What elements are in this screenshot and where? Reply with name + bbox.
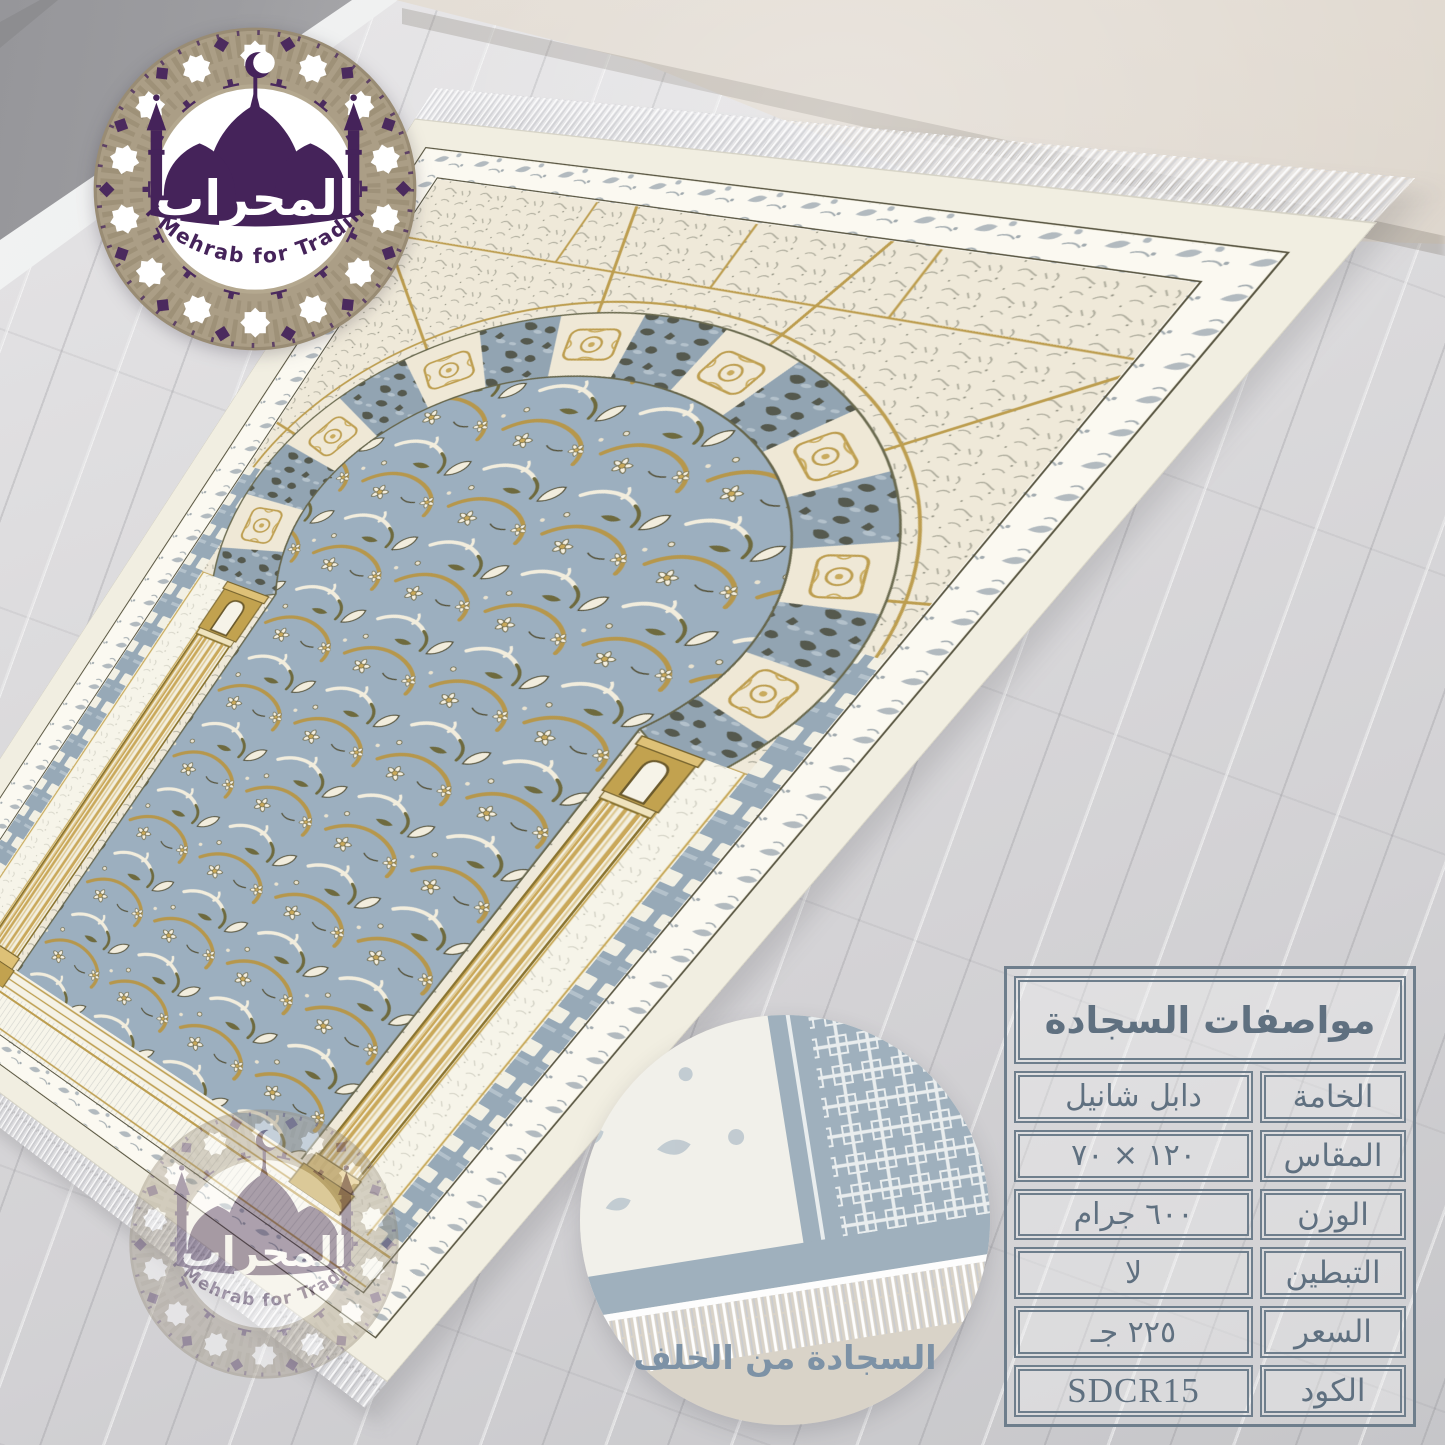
spec-table: مواصفات السجادة الخامة دابل شانيل المقاس… — [1004, 966, 1416, 1427]
spec-label-size: المقاس — [1260, 1130, 1406, 1182]
spec-value-lining: لا — [1014, 1247, 1253, 1299]
inset-caption: السجادة من الخلف — [580, 1338, 990, 1377]
spec-label-material: الخامة — [1260, 1071, 1406, 1123]
scene: السجادة من الخلف مواصفات السجادة الخامة … — [0, 0, 1445, 1445]
spec-label-price: السعر — [1260, 1306, 1406, 1358]
logo-arabic-text: المحراب — [155, 170, 354, 227]
spec-label-weight: الوزن — [1260, 1189, 1406, 1241]
spec-table-title: مواصفات السجادة — [1014, 976, 1406, 1064]
spec-value-material: دابل شانيل — [1014, 1071, 1253, 1123]
spec-value-size: ١٢٠ × ٧٠ — [1014, 1130, 1253, 1182]
spec-value-price: ٢٢٥ جـ — [1014, 1306, 1253, 1358]
spec-label-lining: التبطين — [1260, 1247, 1406, 1299]
spec-value-code: SDCR15 — [1014, 1365, 1253, 1417]
spec-table-grid: الخامة دابل شانيل المقاس ١٢٠ × ٧٠ الوزن … — [1014, 1071, 1406, 1417]
spec-label-code: الكود — [1260, 1365, 1406, 1417]
watermark-logo — [128, 1108, 400, 1380]
logo-badge: المحراب Al Mehrab for Trading — [92, 26, 418, 352]
spec-table-title-text: مواصفات السجادة — [1045, 999, 1376, 1042]
spec-value-weight: ٦٠٠ جرام — [1014, 1189, 1253, 1241]
crescent-cutout — [253, 52, 275, 74]
